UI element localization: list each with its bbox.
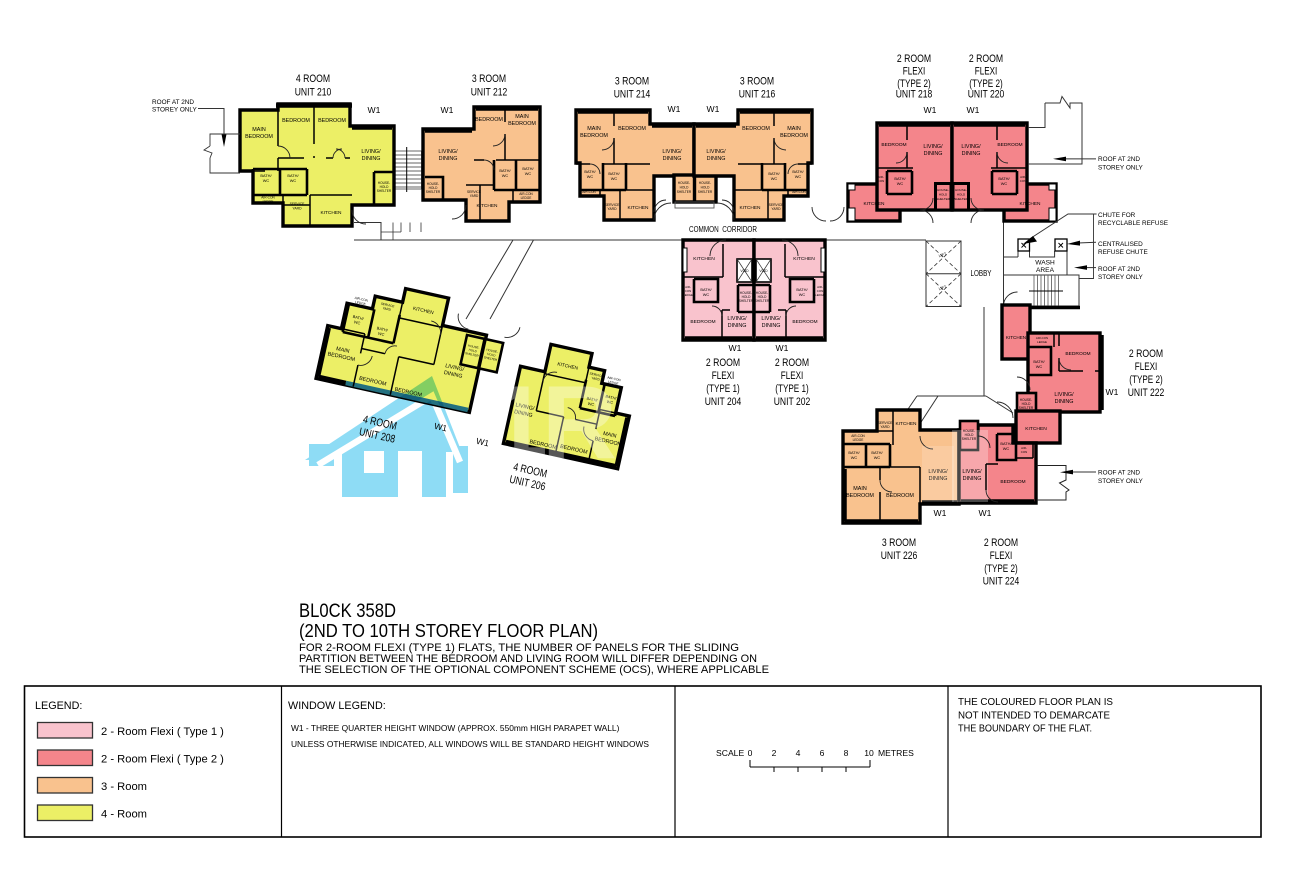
svg-text:BEDROOM: BEDROOM xyxy=(282,118,310,124)
svg-text:LOBBY: LOBBY xyxy=(971,269,993,278)
svg-text:LIVING/: LIVING/ xyxy=(438,149,458,155)
svg-text:WC: WC xyxy=(525,171,532,176)
svg-text:CON: CON xyxy=(1020,179,1026,183)
svg-text:HOUSE-: HOUSE- xyxy=(678,181,690,185)
svg-text:4: 4 xyxy=(796,748,801,758)
svg-text:2 ROOM: 2 ROOM xyxy=(775,357,809,369)
svg-text:3 ROOM: 3 ROOM xyxy=(882,537,916,549)
svg-text:BEDROOM: BEDROOM xyxy=(475,117,503,123)
svg-text:LEGEND:: LEGEND: xyxy=(35,700,82,712)
svg-text:FLEXI: FLEXI xyxy=(1135,361,1158,373)
svg-text:STOREY ONLY: STOREY ONLY xyxy=(1098,478,1143,485)
svg-text:WC: WC xyxy=(263,178,270,183)
svg-text:SCALE: SCALE xyxy=(716,748,744,758)
svg-text:KITCHEN: KITCHEN xyxy=(895,421,917,427)
svg-text:BL0CK 358D: BL0CK 358D xyxy=(299,600,396,622)
svg-text:2 ROOM: 2 ROOM xyxy=(984,537,1018,549)
svg-text:(TYPE 1): (TYPE 1) xyxy=(775,383,809,395)
svg-text:WC: WC xyxy=(897,181,904,186)
svg-text:SHELTER: SHELTER xyxy=(698,190,713,194)
svg-text:KITCHEN: KITCHEN xyxy=(1019,201,1041,207)
svg-text:WC: WC xyxy=(703,292,710,297)
svg-text:DINING: DINING xyxy=(963,476,982,482)
svg-text:LIVING/: LIVING/ xyxy=(727,316,747,322)
svg-text:KITCHEN: KITCHEN xyxy=(863,201,885,207)
svg-text:WC: WC xyxy=(587,174,594,179)
svg-text:LEDGE: LEDGE xyxy=(1037,340,1047,344)
svg-text:BEDROOM: BEDROOM xyxy=(1065,351,1090,357)
svg-text:2 ROOM: 2 ROOM xyxy=(706,357,740,369)
svg-text:UNIT 222: UNIT 222 xyxy=(1128,387,1165,399)
svg-text:WC: WC xyxy=(771,176,778,181)
svg-text:SHELTER: SHELTER xyxy=(1019,406,1034,410)
svg-text:YARD: YARD xyxy=(607,207,617,211)
svg-text:SERVICE: SERVICE xyxy=(290,202,306,206)
svg-text:BEDROOM: BEDROOM xyxy=(245,134,273,140)
svg-text:RECYCLABLE REFUSE: RECYCLABLE REFUSE xyxy=(1098,220,1168,227)
svg-text:YARD: YARD xyxy=(880,425,890,429)
svg-text:DINING: DINING xyxy=(439,156,458,162)
svg-text:WC: WC xyxy=(1003,446,1010,451)
svg-text:LIVING/: LIVING/ xyxy=(961,144,981,150)
svg-text:DINING: DINING xyxy=(924,151,943,157)
svg-text:AIR-CON: AIR-CON xyxy=(792,190,806,194)
svg-text:4 ROOM: 4 ROOM xyxy=(296,73,330,85)
svg-text:HOLD: HOLD xyxy=(957,193,966,197)
svg-text:KITCHEN: KITCHEN xyxy=(320,210,342,216)
svg-text:UNIT 224: UNIT 224 xyxy=(983,576,1020,588)
svg-text:CENTRALISED: CENTRALISED xyxy=(1098,241,1143,248)
svg-text:UNIT 210: UNIT 210 xyxy=(295,87,332,99)
svg-text:BEDROOM: BEDROOM xyxy=(618,126,646,132)
svg-text:LIVING/: LIVING/ xyxy=(361,149,381,155)
svg-text:LEDGE: LEDGE xyxy=(521,196,532,200)
svg-text:STOREY ONLY: STOREY ONLY xyxy=(152,107,197,114)
svg-text:STOREY ONLY: STOREY ONLY xyxy=(1098,274,1143,281)
svg-text:METRES: METRES xyxy=(878,748,914,758)
svg-text:BEDROOM: BEDROOM xyxy=(742,126,770,132)
svg-text:WC: WC xyxy=(1036,364,1043,369)
svg-text:W1: W1 xyxy=(934,508,947,518)
svg-text:W1: W1 xyxy=(967,105,980,115)
svg-text:10: 10 xyxy=(864,748,874,758)
svg-text:WC: WC xyxy=(874,455,881,460)
svg-text:FLEXI: FLEXI xyxy=(975,66,998,78)
svg-text:VOID: VOID xyxy=(759,269,768,273)
svg-text:(TYPE 1): (TYPE 1) xyxy=(706,383,740,395)
svg-text:LEDGE: LEDGE xyxy=(815,293,825,297)
svg-text:BEDROOM: BEDROOM xyxy=(318,118,346,124)
svg-text:W1: W1 xyxy=(368,105,381,115)
svg-text:W1: W1 xyxy=(668,104,681,114)
svg-text:KITCHEN: KITCHEN xyxy=(1006,335,1026,340)
svg-text:3 - Room: 3 - Room xyxy=(101,781,147,793)
svg-text:ROOF AT 2ND: ROOF AT 2ND xyxy=(152,99,194,106)
svg-text:LIVING/: LIVING/ xyxy=(962,469,982,475)
svg-text:BEDROOM: BEDROOM xyxy=(846,493,874,499)
svg-text:BEDROOM: BEDROOM xyxy=(580,133,608,139)
svg-text:HOUSE-: HOUSE- xyxy=(699,181,711,185)
svg-text:DINING: DINING xyxy=(663,156,682,162)
svg-text:HOUSE-: HOUSE- xyxy=(955,188,967,192)
svg-text:KITCHEN: KITCHEN xyxy=(476,203,498,209)
svg-text:BEDROOM: BEDROOM xyxy=(997,142,1022,148)
svg-text:SHELTER: SHELTER xyxy=(962,437,977,441)
svg-text:KITCHEN: KITCHEN xyxy=(627,205,649,211)
svg-text:LEDGE: LEDGE xyxy=(683,293,693,297)
svg-text:2 ROOM: 2 ROOM xyxy=(1129,348,1163,360)
svg-text:W1: W1 xyxy=(707,104,720,114)
svg-text:SHELTER: SHELTER xyxy=(936,197,950,201)
svg-text:6: 6 xyxy=(820,748,825,758)
svg-text:8: 8 xyxy=(844,748,849,758)
svg-text:2 - Room Flexi ( Type 1 ): 2 - Room Flexi ( Type 1 ) xyxy=(101,726,224,738)
svg-text:THE BOUNDARY OF THE FLAT.: THE BOUNDARY OF THE FLAT. xyxy=(958,724,1092,735)
svg-text:FLEXI: FLEXI xyxy=(903,66,926,78)
svg-text:LIVING/: LIVING/ xyxy=(923,144,943,150)
svg-text:MAIN: MAIN xyxy=(252,127,266,133)
svg-text:W1: W1 xyxy=(924,105,937,115)
svg-text:BEDROOM: BEDROOM xyxy=(881,142,906,148)
svg-text:KITCHEN: KITCHEN xyxy=(693,256,715,262)
svg-text:KITCHEN: KITCHEN xyxy=(793,256,815,262)
svg-text:SHELTER: SHELTER xyxy=(426,190,441,194)
svg-text:2 ROOM: 2 ROOM xyxy=(897,53,931,65)
svg-text:VOID: VOID xyxy=(740,269,749,273)
svg-text:AIR-CON: AIR-CON xyxy=(582,190,596,194)
svg-text:W1: W1 xyxy=(441,105,454,115)
svg-text:KITCHEN: KITCHEN xyxy=(1025,426,1047,432)
svg-text:SHELTER: SHELTER xyxy=(377,189,392,193)
svg-text:CHUTE FOR: CHUTE FOR xyxy=(1098,212,1136,219)
svg-text:ROOF AT 2ND: ROOF AT 2ND xyxy=(1098,470,1140,477)
svg-text:MAIN: MAIN xyxy=(515,114,529,120)
svg-text:W1: W1 xyxy=(979,508,992,518)
svg-text:WC: WC xyxy=(795,174,802,179)
svg-text:(2ND TO 10TH STOREY FLOOR PLAN: (2ND TO 10TH STOREY FLOOR PLAN) xyxy=(299,620,598,641)
svg-text:THE SELECTION OF THE OPTIONAL: THE SELECTION OF THE OPTIONAL COMPONENT … xyxy=(299,664,769,676)
svg-text:COMMON CORRIDOR: COMMON CORRIDOR xyxy=(689,225,757,234)
svg-text:WINDOW LEGEND:: WINDOW LEGEND: xyxy=(288,700,386,712)
svg-text:0: 0 xyxy=(748,748,753,758)
svg-text:1R: 1R xyxy=(490,365,615,481)
svg-text:2: 2 xyxy=(772,748,777,758)
svg-text:4 - Room: 4 - Room xyxy=(101,809,147,821)
svg-text:MAIN: MAIN xyxy=(787,126,801,132)
svg-text:WC: WC xyxy=(611,176,618,181)
svg-text:LIVING/: LIVING/ xyxy=(662,149,682,155)
svg-text:NOT INTENDED TO DEMARCATE: NOT INTENDED TO DEMARCATE xyxy=(958,711,1110,722)
svg-text:REFUSE CHUTE: REFUSE CHUTE xyxy=(1098,249,1148,256)
svg-text:UNIT 216: UNIT 216 xyxy=(739,89,776,101)
svg-text:UNIT 220: UNIT 220 xyxy=(968,89,1005,101)
svg-text:DINING: DINING xyxy=(707,156,726,162)
svg-text:UNIT 204: UNIT 204 xyxy=(705,396,742,408)
svg-text:YARD: YARD xyxy=(292,207,302,211)
svg-text:CON: CON xyxy=(878,179,884,183)
svg-text:HOLD: HOLD xyxy=(680,186,690,190)
svg-text:W1 - THREE QUARTER HEIGHT WIND: W1 - THREE QUARTER HEIGHT WINDOW (APPROX… xyxy=(291,723,620,733)
svg-text:LIVING/: LIVING/ xyxy=(1054,392,1074,398)
svg-text:SHELTER: SHELTER xyxy=(739,299,754,303)
svg-text:YARD: YARD xyxy=(771,207,781,211)
svg-text:SHELTER: SHELTER xyxy=(677,190,692,194)
svg-text:DINING: DINING xyxy=(362,156,381,162)
svg-text:THE COLOURED FLOOR PLAN IS: THE COLOURED FLOOR PLAN IS xyxy=(958,697,1113,708)
svg-text:DINING: DINING xyxy=(728,323,747,329)
svg-text:WC: WC xyxy=(851,455,858,460)
svg-text:BEDROOM: BEDROOM xyxy=(1000,479,1025,485)
svg-text:ROOF AT 2ND: ROOF AT 2ND xyxy=(1098,266,1140,273)
svg-text:AREA: AREA xyxy=(1036,267,1055,274)
svg-text:DINING: DINING xyxy=(762,323,781,329)
svg-text:MAIN: MAIN xyxy=(853,486,867,492)
svg-text:FLEXI: FLEXI xyxy=(781,370,804,382)
svg-text:UNIT 212: UNIT 212 xyxy=(471,87,508,99)
svg-text:W1: W1 xyxy=(776,343,789,353)
svg-text:3 ROOM: 3 ROOM xyxy=(472,73,506,85)
svg-text:STOREY ONLY: STOREY ONLY xyxy=(1098,165,1143,172)
svg-text:YARD: YARD xyxy=(470,194,479,198)
svg-text:LIVING/: LIVING/ xyxy=(706,149,726,155)
svg-text:(TYPE 2): (TYPE 2) xyxy=(1129,374,1163,386)
svg-text:W1: W1 xyxy=(1106,387,1119,397)
svg-text:CON: CON xyxy=(1021,450,1027,454)
svg-text:UNLESS OTHERWISE INDICATED, AL: UNLESS OTHERWISE INDICATED, ALL WINDOWS … xyxy=(291,739,649,749)
svg-text:3 ROOM: 3 ROOM xyxy=(740,76,774,88)
svg-text:HOLD: HOLD xyxy=(939,193,948,197)
svg-text:WASH: WASH xyxy=(1035,260,1055,267)
svg-text:LEDGE: LEDGE xyxy=(853,438,864,442)
svg-text:HOLD: HOLD xyxy=(701,186,711,190)
svg-text:KITCHEN: KITCHEN xyxy=(739,205,761,211)
svg-text:3 ROOM: 3 ROOM xyxy=(615,76,649,88)
svg-text:LEDGE: LEDGE xyxy=(263,200,274,204)
svg-text:UNIT 202: UNIT 202 xyxy=(774,396,811,408)
svg-text:BEDROOM: BEDROOM xyxy=(886,493,914,499)
svg-text:W1: W1 xyxy=(729,343,742,353)
svg-text:SHELTER: SHELTER xyxy=(755,299,770,303)
svg-text:SHELTER: SHELTER xyxy=(954,197,968,201)
svg-text:WC: WC xyxy=(799,292,806,297)
svg-text:WC: WC xyxy=(1001,181,1008,186)
svg-text:BEDROOM: BEDROOM xyxy=(508,121,536,127)
svg-text:BEDROOM: BEDROOM xyxy=(792,319,817,325)
svg-text:UNIT 218: UNIT 218 xyxy=(896,89,933,101)
svg-text:ROOF AT 2ND: ROOF AT 2ND xyxy=(1098,156,1140,163)
svg-text:FLEXI: FLEXI xyxy=(712,370,735,382)
svg-text:LIVING/: LIVING/ xyxy=(761,316,781,322)
svg-text:HOUSE-: HOUSE- xyxy=(937,188,949,192)
svg-text:2 ROOM: 2 ROOM xyxy=(969,53,1003,65)
svg-text:UNIT 214: UNIT 214 xyxy=(614,89,651,101)
svg-text:BEDROOM: BEDROOM xyxy=(780,133,808,139)
svg-text:2 - Room Flexi ( Type 2 ): 2 - Room Flexi ( Type 2 ) xyxy=(101,754,224,766)
svg-text:MAIN: MAIN xyxy=(587,126,601,132)
svg-text:DINING: DINING xyxy=(1055,399,1074,405)
svg-text:FLEXI: FLEXI xyxy=(990,550,1013,562)
svg-text:WC: WC xyxy=(502,173,509,178)
svg-text:DINING: DINING xyxy=(962,151,981,157)
svg-text:BEDROOM: BEDROOM xyxy=(690,319,715,325)
svg-text:(TYPE 2): (TYPE 2) xyxy=(984,563,1018,575)
svg-text:WC: WC xyxy=(290,178,297,183)
svg-text:UNIT 226: UNIT 226 xyxy=(881,550,918,562)
